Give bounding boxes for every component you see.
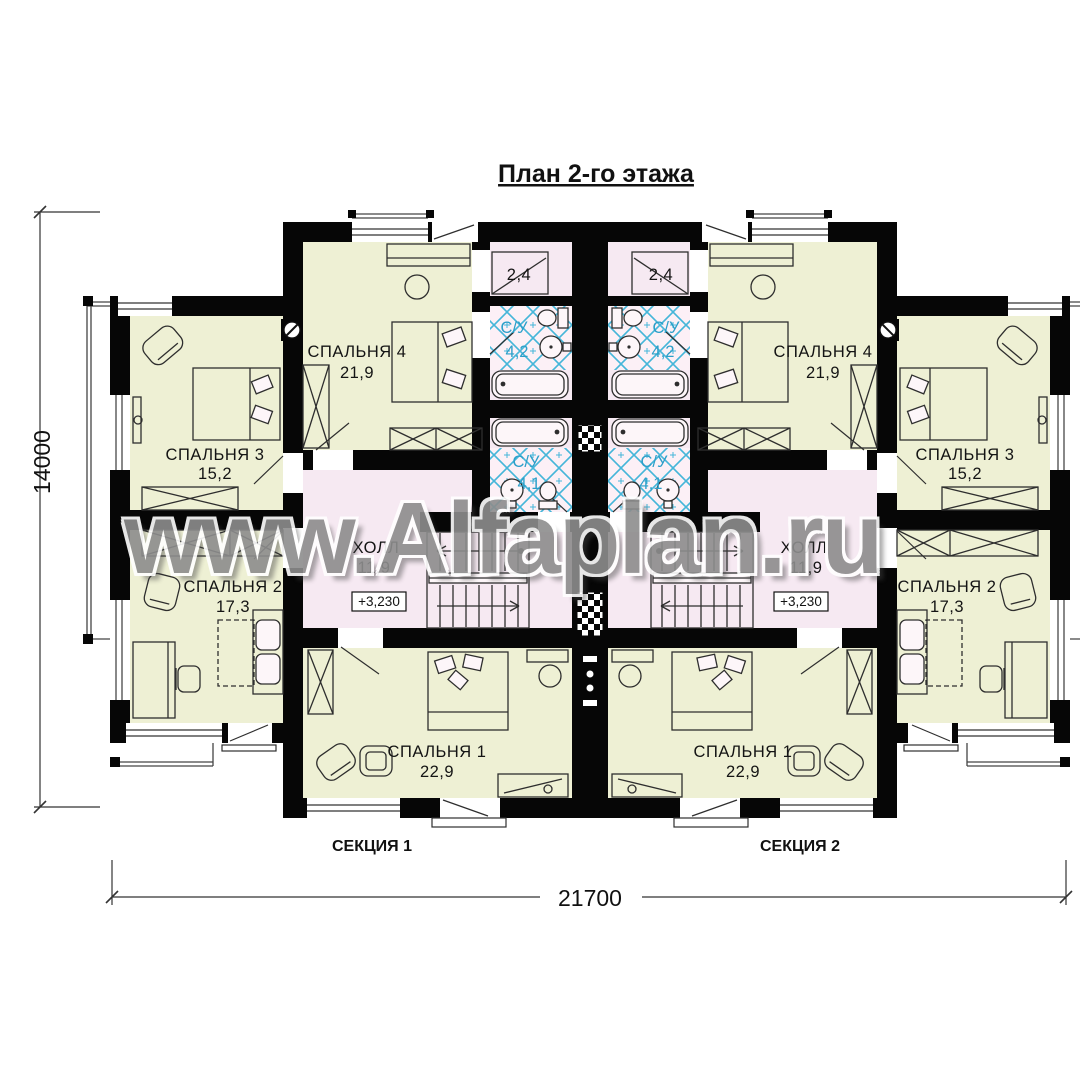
page-title: План 2-го этажа: [498, 160, 695, 188]
overall-width-dimension: 21700: [558, 885, 622, 911]
floor-plan-page: СПАЛЬНЯ 4 21,9 СПАЛЬНЯ 3 15,2 СПАЛЬНЯ 2 …: [0, 0, 1080, 1080]
room-label: С/У: [501, 319, 529, 337]
room-label: СПАЛЬНЯ 4: [308, 343, 407, 361]
closet-area: 2,4: [507, 266, 531, 284]
room-label: СПАЛЬНЯ 2: [898, 578, 997, 596]
dimension-bottom: 21700: [106, 860, 1072, 911]
section-1-label: СЕКЦИЯ 1: [332, 838, 412, 855]
watermark: www.Alfaplan.ru: [124, 489, 881, 590]
elevation-mark: +3,230: [358, 594, 400, 609]
room-area: 15,2: [198, 465, 232, 483]
room-area: 21,9: [806, 364, 840, 382]
room-label: СПАЛЬНЯ 4: [774, 343, 873, 361]
room-label: С/У: [513, 453, 541, 471]
room-label: С/У: [653, 319, 681, 337]
room-area: 17,3: [930, 598, 964, 616]
room-label: СПАЛЬНЯ 1: [694, 743, 793, 761]
room-label: СПАЛЬНЯ 3: [916, 446, 1015, 464]
room-area: 4,2: [506, 343, 529, 361]
room-area: 22,9: [420, 763, 454, 781]
elevation-mark: +3,230: [780, 594, 822, 609]
section-2-label: СЕКЦИЯ 2: [760, 838, 840, 855]
room-label: СПАЛЬНЯ 1: [388, 743, 487, 761]
room-area: 21,9: [340, 364, 374, 382]
room-area: 22,9: [726, 763, 760, 781]
room-area: 4,2: [652, 343, 675, 361]
overall-height-dimension: 14000: [29, 430, 55, 494]
room-label: С/У: [641, 453, 669, 471]
closet-area: 2,4: [649, 266, 673, 284]
room-area: 17,3: [216, 598, 250, 616]
room-area: 15,2: [948, 465, 982, 483]
room-label: СПАЛЬНЯ 3: [166, 446, 265, 464]
